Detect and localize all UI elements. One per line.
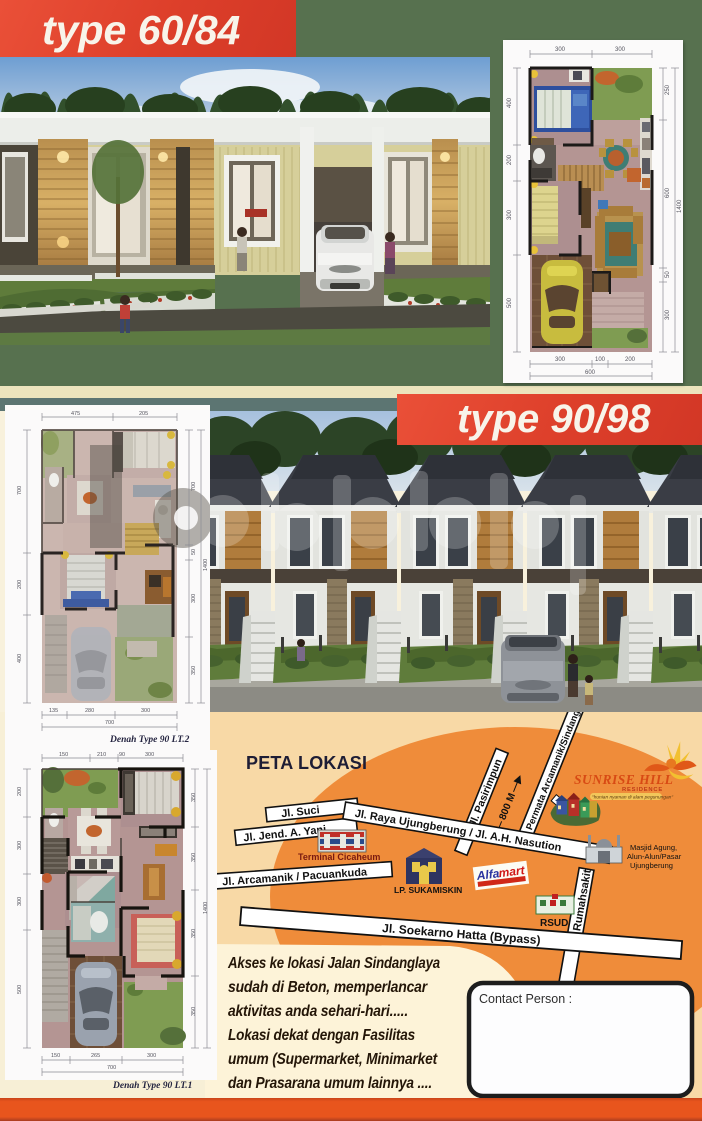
- svg-text:600: 600: [665, 187, 671, 198]
- svg-text:umum (Supermarket, Minimarket: umum (Supermarket, Minimarket: [228, 1051, 438, 1068]
- svg-text:200: 200: [507, 154, 513, 165]
- svg-text:RESIDENCE: RESIDENCE: [622, 787, 663, 793]
- svg-text:700: 700: [191, 482, 197, 491]
- svg-text:1400: 1400: [203, 902, 209, 914]
- svg-text:aktivitas anda sehari-hari....: aktivitas anda sehari-hari.....: [228, 1003, 408, 1020]
- svg-text:135: 135: [49, 708, 58, 714]
- svg-text:RSUD: RSUD: [540, 918, 568, 929]
- svg-text:350: 350: [191, 793, 197, 802]
- svg-text:205: 205: [139, 411, 148, 417]
- svg-text:700: 700: [17, 486, 23, 495]
- svg-text:300: 300: [141, 708, 150, 714]
- svg-text:700: 700: [107, 1065, 116, 1071]
- svg-text:Terminal Cicaheum: Terminal Cicaheum: [298, 852, 380, 862]
- svg-text:Contact Person :: Contact Person :: [479, 992, 572, 1006]
- svg-text:SUNRISE HILL: SUNRISE HILL: [574, 772, 673, 787]
- svg-text:350: 350: [191, 666, 197, 675]
- svg-text:250: 250: [665, 84, 671, 95]
- svg-text:300: 300: [555, 47, 566, 53]
- svg-text:300: 300: [191, 594, 197, 603]
- svg-text:Akses ke lokasi Jalan Sindangl: Akses ke lokasi Jalan Sindanglaya: [227, 955, 440, 972]
- svg-text:700: 700: [105, 720, 114, 726]
- svg-text:Alun-Alun/Pasar: Alun-Alun/Pasar: [627, 852, 682, 861]
- svg-text:200: 200: [17, 580, 23, 589]
- svg-text:500: 500: [507, 297, 513, 308]
- svg-text:475: 475: [71, 411, 80, 417]
- svg-text:LP. SUKAMISKIN: LP. SUKAMISKIN: [394, 885, 462, 895]
- svg-text:200: 200: [17, 787, 23, 796]
- svg-text:Denah Type 90 LT.2: Denah Type 90 LT.2: [109, 735, 190, 745]
- svg-text:300: 300: [555, 357, 566, 363]
- svg-text:500: 500: [17, 985, 23, 994]
- svg-text:50: 50: [665, 271, 671, 278]
- svg-text:1400: 1400: [677, 199, 683, 213]
- svg-text:150: 150: [51, 1053, 60, 1059]
- svg-text:Masjid Agung,: Masjid Agung,: [630, 843, 677, 852]
- svg-text:Denah Type 90 LT.1: Denah Type 90 LT.1: [112, 1081, 192, 1091]
- svg-text:300: 300: [145, 752, 154, 758]
- svg-text:210: 210: [97, 752, 106, 758]
- svg-text:150: 150: [59, 752, 68, 758]
- svg-text:400: 400: [17, 654, 23, 663]
- svg-text:300: 300: [147, 1053, 156, 1059]
- svg-text:1400: 1400: [203, 559, 209, 571]
- svg-text:50: 50: [191, 549, 197, 555]
- svg-text:sudah di Beton, memperlancar: sudah di Beton, memperlancar: [228, 979, 428, 996]
- svg-text:Lokasi dekat dengan Fasilitas: Lokasi dekat dengan Fasilitas: [228, 1027, 416, 1044]
- svg-text:"hunian nyaman di alam pegunun: "hunian nyaman di alam pegunungan": [592, 795, 673, 801]
- svg-text:300: 300: [507, 209, 513, 220]
- svg-text:300: 300: [17, 897, 23, 906]
- svg-text:600: 600: [585, 370, 596, 376]
- svg-text:100: 100: [595, 357, 606, 363]
- svg-text:Ujungberung: Ujungberung: [630, 861, 673, 870]
- svg-text:400: 400: [507, 97, 513, 108]
- svg-text:350: 350: [191, 853, 197, 862]
- svg-text:200: 200: [625, 357, 636, 363]
- svg-text:280: 280: [85, 708, 94, 714]
- svg-text:350: 350: [191, 929, 197, 938]
- svg-text:300: 300: [615, 47, 626, 53]
- svg-text:265: 265: [91, 1053, 100, 1059]
- svg-text:300: 300: [665, 309, 671, 320]
- svg-text:350: 350: [191, 1007, 197, 1016]
- svg-text:dan Prasarana umum lainnya ...: dan Prasarana umum lainnya ....: [228, 1075, 432, 1092]
- svg-text:90: 90: [119, 752, 125, 758]
- svg-text:PETA LOKASI: PETA LOKASI: [246, 753, 367, 773]
- svg-text:300: 300: [17, 841, 23, 850]
